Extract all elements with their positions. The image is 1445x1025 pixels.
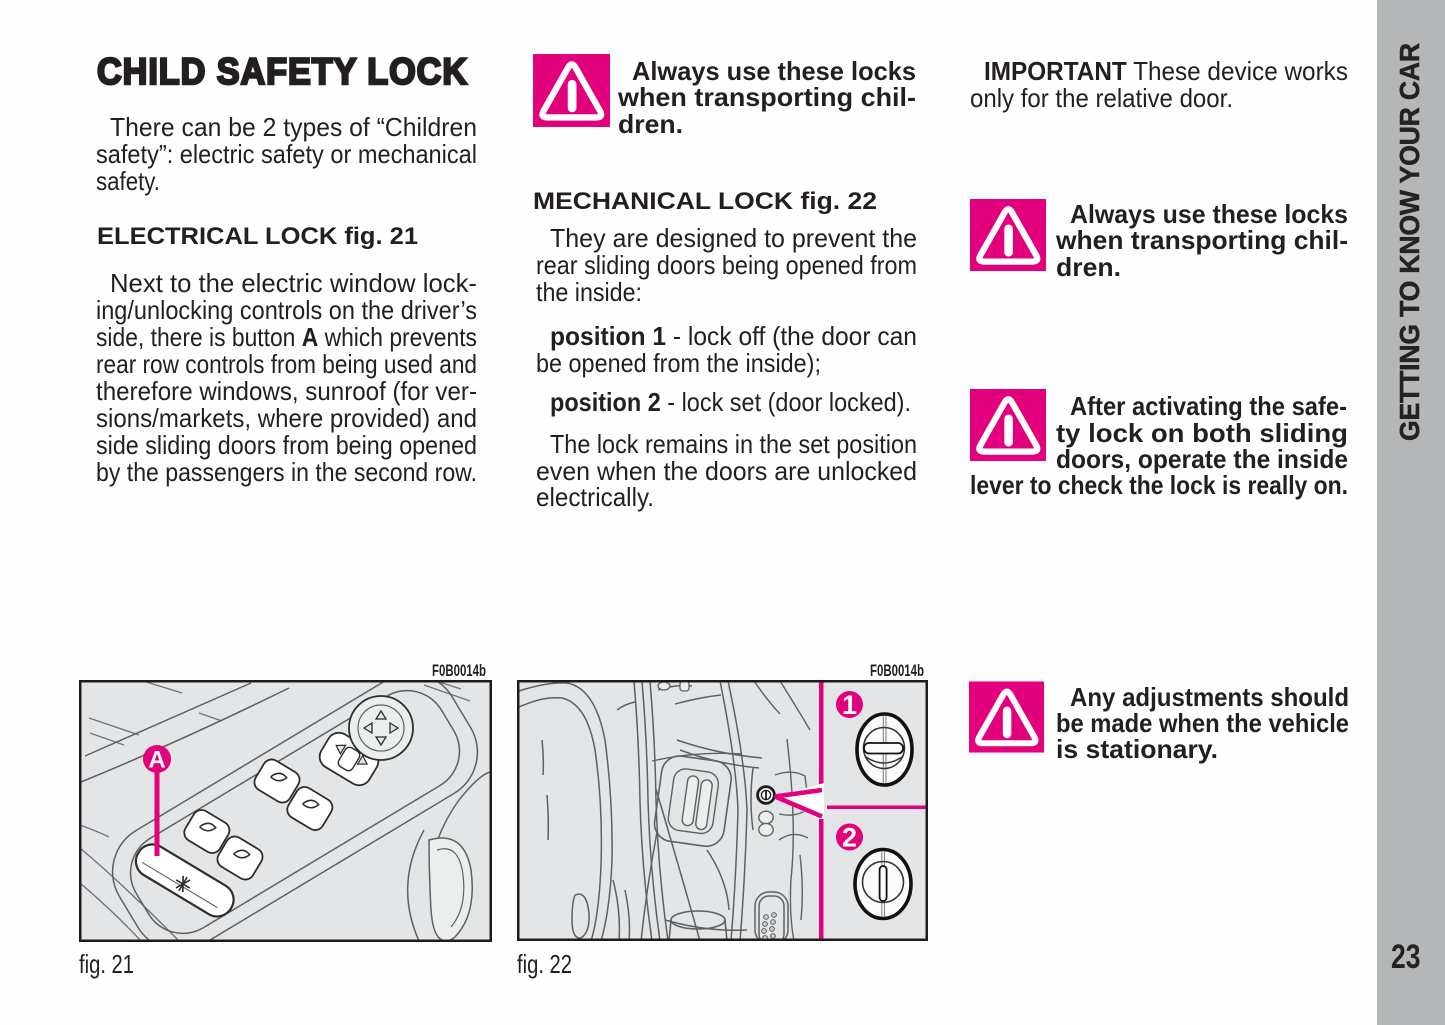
svg-text:2: 2 [842, 823, 857, 853]
svg-text:A: A [148, 747, 165, 774]
svg-text:1: 1 [842, 690, 857, 720]
